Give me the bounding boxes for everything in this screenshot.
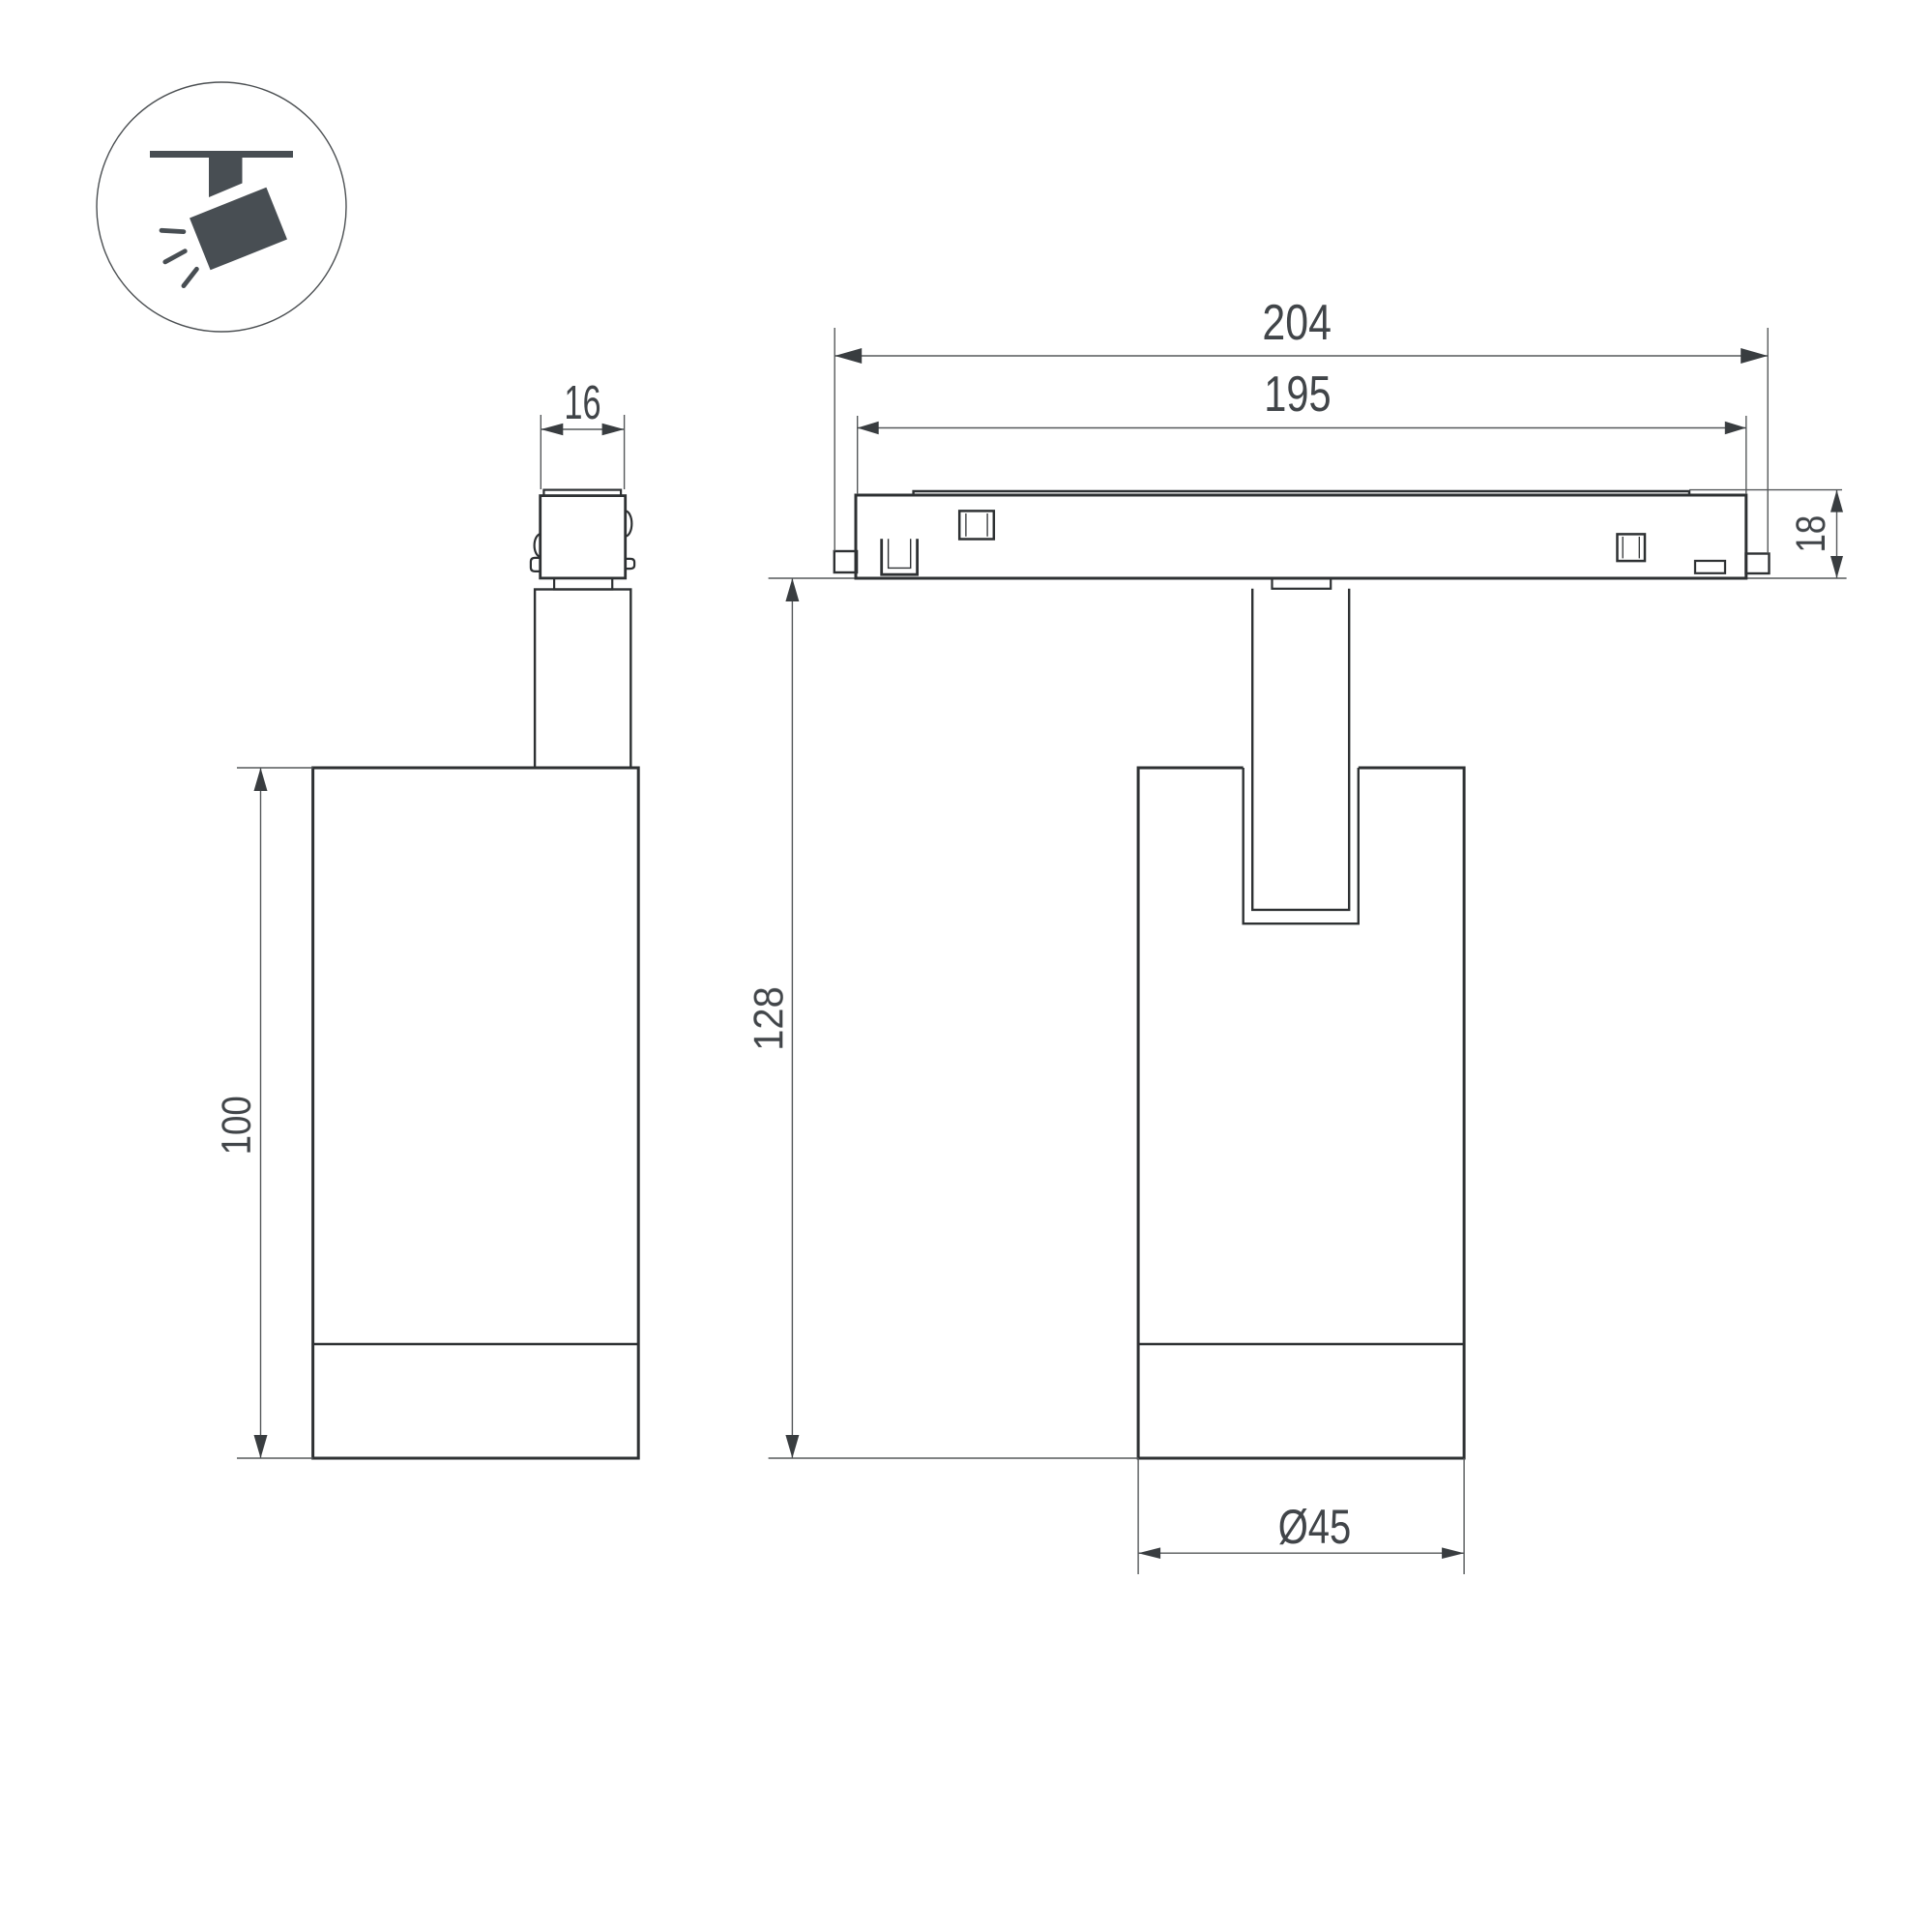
svg-text:16: 16	[564, 376, 600, 428]
svg-text:128: 128	[745, 986, 792, 1051]
svg-text:100: 100	[214, 1096, 259, 1155]
svg-text:204: 204	[1262, 295, 1332, 351]
svg-text:18: 18	[1789, 515, 1834, 553]
svg-text:Ø45: Ø45	[1278, 1500, 1352, 1554]
svg-text:195: 195	[1264, 366, 1331, 423]
